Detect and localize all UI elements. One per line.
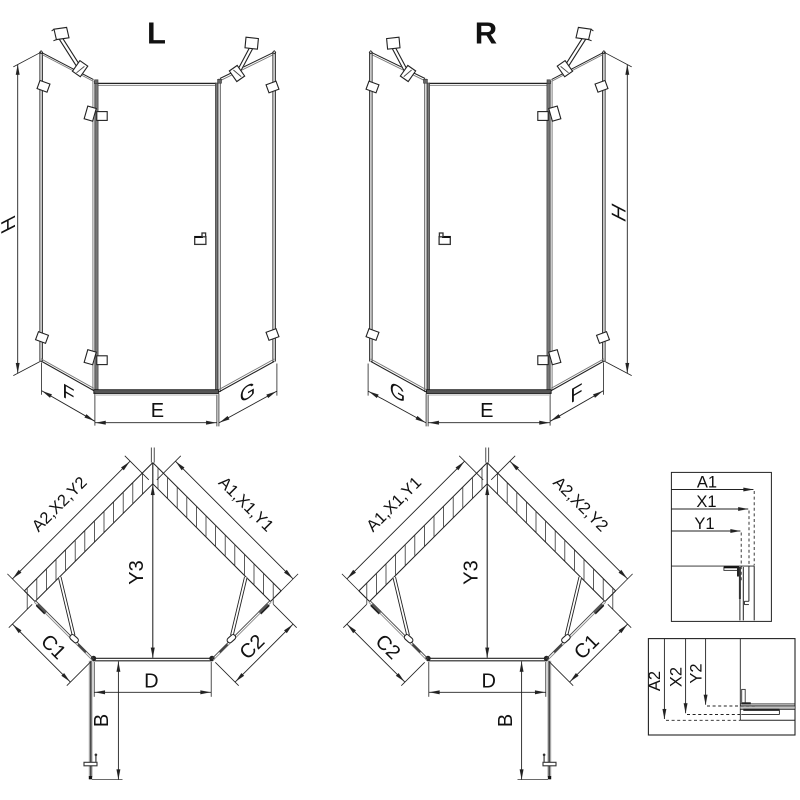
svg-text:R: R: [475, 16, 497, 51]
svg-text:E: E: [151, 400, 164, 422]
svg-text:A1: A1: [697, 474, 717, 492]
svg-text:Y3: Y3: [460, 560, 482, 584]
svg-text:L: L: [147, 16, 166, 51]
svg-text:Y2: Y2: [687, 663, 705, 683]
svg-text:E: E: [480, 400, 493, 422]
svg-text:B: B: [91, 714, 113, 727]
svg-text:B: B: [495, 714, 517, 727]
svg-text:X2: X2: [667, 667, 685, 687]
svg-text:Y3: Y3: [126, 560, 148, 584]
svg-text:X1: X1: [696, 493, 716, 511]
svg-text:A2: A2: [646, 671, 664, 691]
svg-text:Y1: Y1: [694, 515, 714, 533]
svg-text:D: D: [481, 671, 495, 693]
svg-text:D: D: [144, 671, 158, 693]
